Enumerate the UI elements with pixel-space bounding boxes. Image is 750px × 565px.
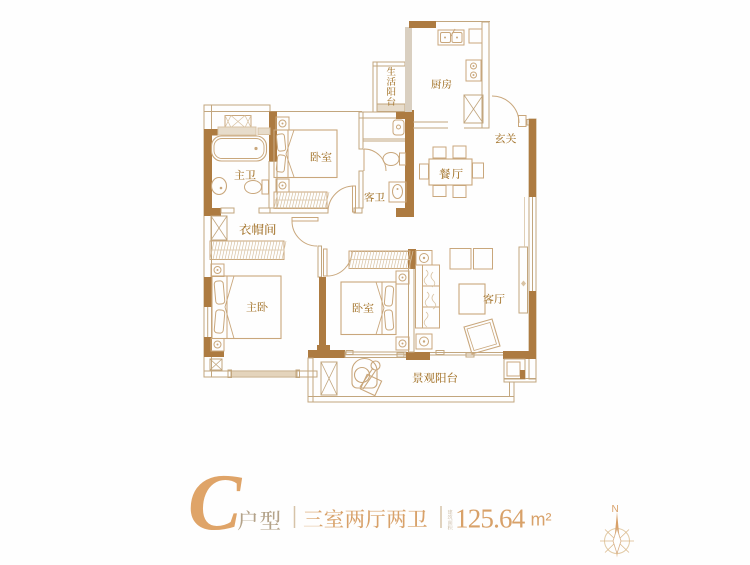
svg-text:m²: m² (531, 510, 552, 530)
svg-text:N: N (612, 504, 619, 515)
svg-text:125.64: 125.64 (455, 504, 526, 534)
svg-text:C: C (188, 459, 243, 547)
